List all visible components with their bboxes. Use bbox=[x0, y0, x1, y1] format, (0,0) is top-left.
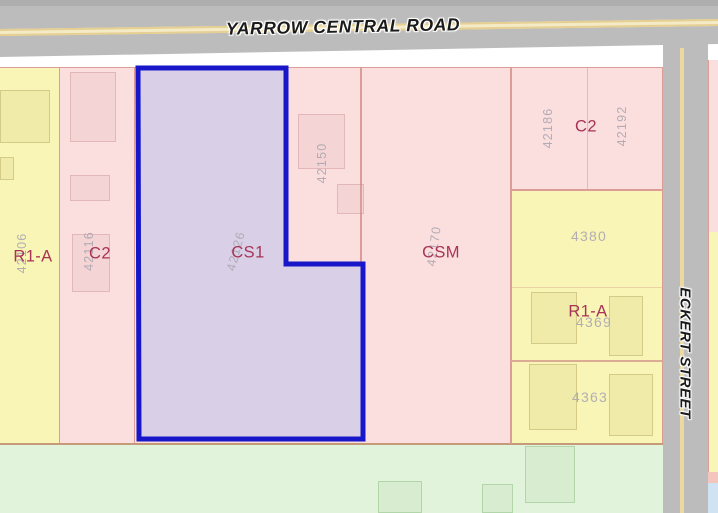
lot-number: 42150 bbox=[315, 143, 329, 184]
parcel-east-blue[interactable] bbox=[708, 483, 718, 513]
lot-number: 4380 bbox=[571, 228, 607, 244]
building-footprint bbox=[482, 484, 513, 513]
building-footprint bbox=[70, 72, 116, 142]
zone-label-cs1: CS1 bbox=[231, 244, 264, 263]
zone-label-csm: CSM bbox=[422, 244, 460, 263]
building-footprint bbox=[0, 90, 50, 143]
road-label-eckert: ECKERT STREET bbox=[677, 287, 694, 418]
building-footprint bbox=[378, 481, 422, 513]
parcel-east-yellow[interactable] bbox=[708, 232, 718, 472]
eckert-street-road bbox=[663, 44, 708, 513]
parcel-east-pink-strip[interactable] bbox=[708, 472, 718, 483]
zone-label-r1a-left: R1-A bbox=[13, 248, 52, 267]
zone-label-c2-left: C2 bbox=[89, 245, 111, 264]
boundary-4380-4369 bbox=[511, 287, 662, 288]
parcel-east-pink[interactable] bbox=[708, 60, 718, 232]
lot-number: 42186 bbox=[541, 108, 555, 149]
building-footprint bbox=[525, 446, 575, 503]
boundary-4369-4363 bbox=[511, 360, 662, 362]
boundary-csm-c2 bbox=[510, 67, 512, 444]
road-label-yarrow: YARROW CENTRAL ROAD bbox=[226, 14, 461, 39]
lot-number: 4363 bbox=[572, 389, 608, 405]
building-footprint bbox=[0, 157, 14, 180]
boundary-c2-r1a bbox=[511, 189, 662, 191]
building-footprint bbox=[609, 374, 653, 436]
zoning-map: 42106 42116 42126 42150 42170 42186 4219… bbox=[0, 0, 718, 513]
road-edge bbox=[0, 0, 718, 6]
building-footprint bbox=[70, 175, 110, 201]
zone-label-c2-right: C2 bbox=[575, 118, 597, 137]
building-footprint bbox=[609, 296, 643, 356]
building-footprint bbox=[529, 364, 577, 430]
zone-label-r1a-right: R1-A bbox=[568, 303, 607, 322]
eckert-centerline bbox=[680, 48, 684, 513]
lot-number: 42192 bbox=[615, 106, 629, 147]
